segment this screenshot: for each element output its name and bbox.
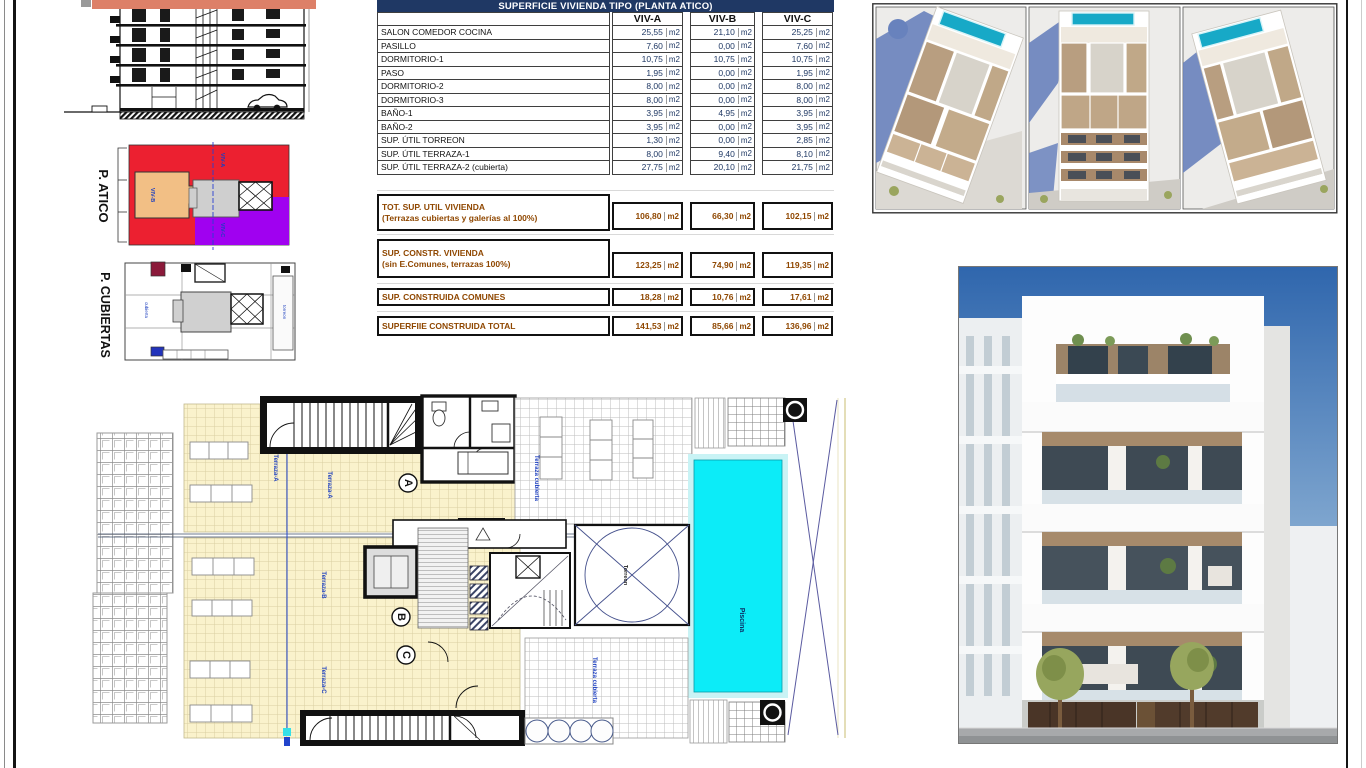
row-value-vB: 10,75m2 — [690, 52, 755, 67]
row-label: SALON COMEDOR COCINA — [377, 25, 610, 40]
row-value-vA: 1,30m2 — [612, 133, 683, 148]
deck-stripes-bottom — [690, 700, 727, 743]
row-value-vB: 21,10m2 — [690, 25, 755, 40]
left-border-thick — [13, 0, 16, 768]
main-floor-plan: Piscina Torreon — [88, 390, 948, 750]
cubierta-note: cubierta — [144, 302, 149, 319]
svg-text:Terraza-B: Terraza-B — [320, 571, 326, 599]
roof-vent-blue — [151, 347, 164, 356]
right-border-thin — [1361, 0, 1362, 768]
salmon-band — [92, 0, 316, 9]
summary-sublabel: (sin E.Comunes, terrazas 100%) — [382, 259, 608, 270]
dimension-bracket — [118, 148, 127, 242]
gray-band-chip — [81, 0, 91, 7]
table-title: SUPERFICIE VIVIENDA TIPO (PLANTA ATICO) — [377, 0, 834, 12]
surface-area-table: SUPERFICIE VIVIENDA TIPO (PLANTA ATICO) … — [377, 0, 834, 340]
summary-label: SUPERFIIE CONSTRUIDA TOTAL — [382, 321, 608, 332]
roof-grid-upper — [97, 433, 173, 593]
row-value-vB: 20,10m2 — [690, 160, 755, 175]
row-value-vC: 3,95m2 — [762, 120, 833, 135]
elevator-box — [231, 294, 263, 324]
cubiertas-plan-body: cubierta torreon — [125, 262, 295, 360]
neighbor-building-left — [958, 318, 1022, 744]
table-row: SUP. ÚTIL TORREON1,30m20,00m22,85m2 — [377, 133, 834, 148]
row-value-vC: 1,95m2 — [762, 66, 833, 81]
table-row: PASILLO7,60m20,00m27,60m2 — [377, 39, 834, 54]
unit-b-label: B — [395, 613, 407, 621]
street — [958, 728, 1338, 744]
cubiertas-plan-title: P. CUBIERTAS — [98, 272, 112, 358]
row-label: BAÑO-2 — [377, 120, 610, 135]
svg-text:Terraza-A: Terraza-A — [272, 454, 278, 482]
stair-room — [490, 553, 570, 628]
table-row: BAÑO-23,95m20,00m23,95m2 — [377, 120, 834, 135]
summary-total: SUPERFIIE CONSTRUIDA TOTAL 141,53m2 85,6… — [377, 316, 834, 336]
row-label: PASILLO — [377, 39, 610, 54]
aerial-renders-strip — [872, 3, 1338, 214]
row-label: BAÑO-1 — [377, 106, 610, 121]
common-core — [189, 180, 239, 217]
row-value-vB: 0,00m2 — [690, 93, 755, 108]
row-label: SUP. ÚTIL TERRAZA-1 — [377, 147, 610, 162]
row-label: SUP. ÚTIL TERRAZA-2 (cubierta) — [377, 160, 610, 175]
summary-comunes: SUP. CONSTRUIDA COMUNES 18,28m2 10,76m2 … — [377, 288, 834, 306]
lavadero-box — [195, 264, 225, 282]
row-value-vA: 7,60m2 — [612, 39, 683, 54]
row-value-vB: 9,40m2 — [690, 147, 755, 162]
row-value-vA: 8,00m2 — [612, 147, 683, 162]
row-value-vA: 3,95m2 — [612, 106, 683, 121]
row-value-vC: 2,85m2 — [762, 133, 833, 148]
row-value-vC: 8,00m2 — [762, 93, 833, 108]
column-marker-bottom — [760, 700, 785, 725]
row-value-vB: 0,00m2 — [690, 133, 755, 148]
common-core — [173, 292, 231, 332]
row-value-vC: 8,10m2 — [762, 147, 833, 162]
column-marker-top — [783, 398, 807, 422]
elevator — [365, 547, 417, 597]
penthouse-level — [1022, 333, 1264, 432]
svg-text:Terraza-A: Terraza-A — [326, 471, 332, 499]
cubiertas-key-plan: P. CUBIERTAS — [85, 252, 313, 378]
row-value-vA: 27,75m2 — [612, 160, 683, 175]
header-viv-c: VIV-C — [762, 12, 833, 26]
viv-c-label: VIV-C — [219, 223, 225, 237]
row-label: DORMITORIO-2 — [377, 79, 610, 94]
header-viv-b: VIV-B — [690, 12, 755, 26]
balcony-floor-2 — [1022, 532, 1264, 632]
aerial-render-2 — [1029, 7, 1180, 209]
pool-label: Piscina — [738, 608, 745, 633]
row-value-vA: 10,75m2 — [612, 52, 683, 67]
table-row: BAÑO-13,95m24,95m23,95m2 — [377, 106, 834, 121]
balcony-floor-1 — [1022, 432, 1264, 532]
waffle-patch-top — [728, 398, 785, 446]
row-value-vA: 8,00m2 — [612, 79, 683, 94]
table-row: DORMITORIO-28,00m20,00m28,00m2 — [377, 79, 834, 94]
torreon-label: Torreon — [622, 565, 628, 586]
header-label-cell — [377, 12, 610, 26]
summary-total-util: TOT. SUP. UTIL VIVIENDA(Terrazas cubiert… — [377, 194, 834, 231]
sun-loungers-right — [540, 417, 653, 480]
svg-text:Terraza-C: Terraza-C — [320, 666, 326, 694]
unit-c-label: C — [400, 651, 412, 659]
viv-b-zone — [135, 172, 198, 218]
row-value-vA: 25,55m2 — [612, 25, 683, 40]
torreon-note: torreon — [282, 305, 287, 320]
facade-render — [958, 266, 1338, 744]
aerial-render-1 — [876, 7, 1026, 209]
viv-a-label: VIV-A — [219, 153, 225, 167]
atico-key-plan: P. ATICO VIV-A VIV-B VIV-C — [85, 140, 313, 252]
row-value-vC: 21,75m2 — [762, 160, 833, 175]
stair-flight-hatched — [418, 528, 468, 628]
table-header-row: VIV-A VIV-B VIV-C — [377, 12, 834, 26]
section-building — [64, 1, 309, 119]
row-value-vA: 3,95m2 — [612, 120, 683, 135]
svg-text:Terraza cubierta: Terraza cubierta — [591, 657, 597, 704]
bottom-stair-block — [300, 710, 525, 746]
roof-grid-lower — [93, 593, 167, 723]
plan-sheet: P. ATICO VIV-A VIV-B VIV-C — [0, 0, 1366, 768]
row-label: SUP. ÚTIL TORREON — [377, 133, 610, 148]
row-value-vA: 8,00m2 — [612, 93, 683, 108]
summary-constr-vivienda: SUP. CONSTR. VIVIENDA(sin E.Comunes, ter… — [377, 239, 834, 278]
table-row: DORMITORIO-110,75m210,75m210,75m2 — [377, 52, 834, 67]
row-label: DORMITORIO-3 — [377, 93, 610, 108]
skylight-box: Torreon — [575, 525, 689, 625]
row-label: DORMITORIO-1 — [377, 52, 610, 67]
elevator-box — [239, 182, 272, 210]
table-rows: SALON COMEDOR COCINA25,55m221,10m225,25m… — [377, 26, 834, 175]
row-value-vA: 1,95m2 — [612, 66, 683, 81]
top-stair-block — [260, 396, 422, 454]
vent-boxes — [470, 566, 488, 630]
summary-label: SUP. CONSTR. VIVIENDA — [382, 248, 608, 259]
building-section-drawing — [56, 0, 346, 146]
atico-plan-body: VIV-A VIV-B VIV-C — [129, 142, 289, 250]
row-value-vB: 0,00m2 — [690, 120, 755, 135]
water-tanks — [525, 718, 613, 744]
viv-b-label: VIV-B — [149, 188, 155, 202]
table-row: DORMITORIO-38,00m20,00m28,00m2 — [377, 93, 834, 108]
row-value-vB: 0,00m2 — [690, 66, 755, 81]
roof-vent-red — [151, 262, 165, 276]
table-row: SUP. ÚTIL TERRAZA-2 (cubierta)27,75m220,… — [377, 160, 834, 175]
svg-text:Terraza cubierta: Terraza cubierta — [533, 455, 539, 502]
neighbor-building-right — [1290, 526, 1338, 744]
right-border-thick — [1346, 0, 1348, 768]
row-value-vC: 3,95m2 — [762, 106, 833, 121]
atico-plan-title: P. ATICO — [96, 169, 111, 222]
pool: Piscina — [688, 454, 788, 698]
summary-label: SUP. CONSTRUIDA COMUNES — [382, 292, 608, 303]
row-value-vC: 25,25m2 — [762, 25, 833, 40]
left-border-thin — [4, 0, 5, 768]
table-row: SALON COMEDOR COCINA25,55m221,10m225,25m… — [377, 25, 834, 40]
row-label: PASO — [377, 66, 610, 81]
summary-label: TOT. SUP. UTIL VIVIENDA — [382, 202, 608, 213]
summary-sublabel: (Terrazas cubiertas y galerías al 100%) — [382, 213, 608, 224]
deck-stripes-top — [695, 398, 725, 448]
row-value-vC: 8,00m2 — [762, 79, 833, 94]
unit-a-label: A — [402, 479, 414, 487]
row-value-vC: 10,75m2 — [762, 52, 833, 67]
row-value-vB: 4,95m2 — [690, 106, 755, 121]
row-value-vB: 0,00m2 — [690, 79, 755, 94]
aerial-render-3 — [1183, 7, 1334, 209]
ground-hatch — [120, 112, 304, 119]
table-row: SUP. ÚTIL TERRAZA-18,00m29,40m28,10m2 — [377, 147, 834, 162]
row-value-vC: 7,60m2 — [762, 39, 833, 54]
row-value-vB: 0,00m2 — [690, 39, 755, 54]
header-viv-a: VIV-A — [612, 12, 683, 26]
table-row: PASO1,95m20,00m21,95m2 — [377, 66, 834, 81]
